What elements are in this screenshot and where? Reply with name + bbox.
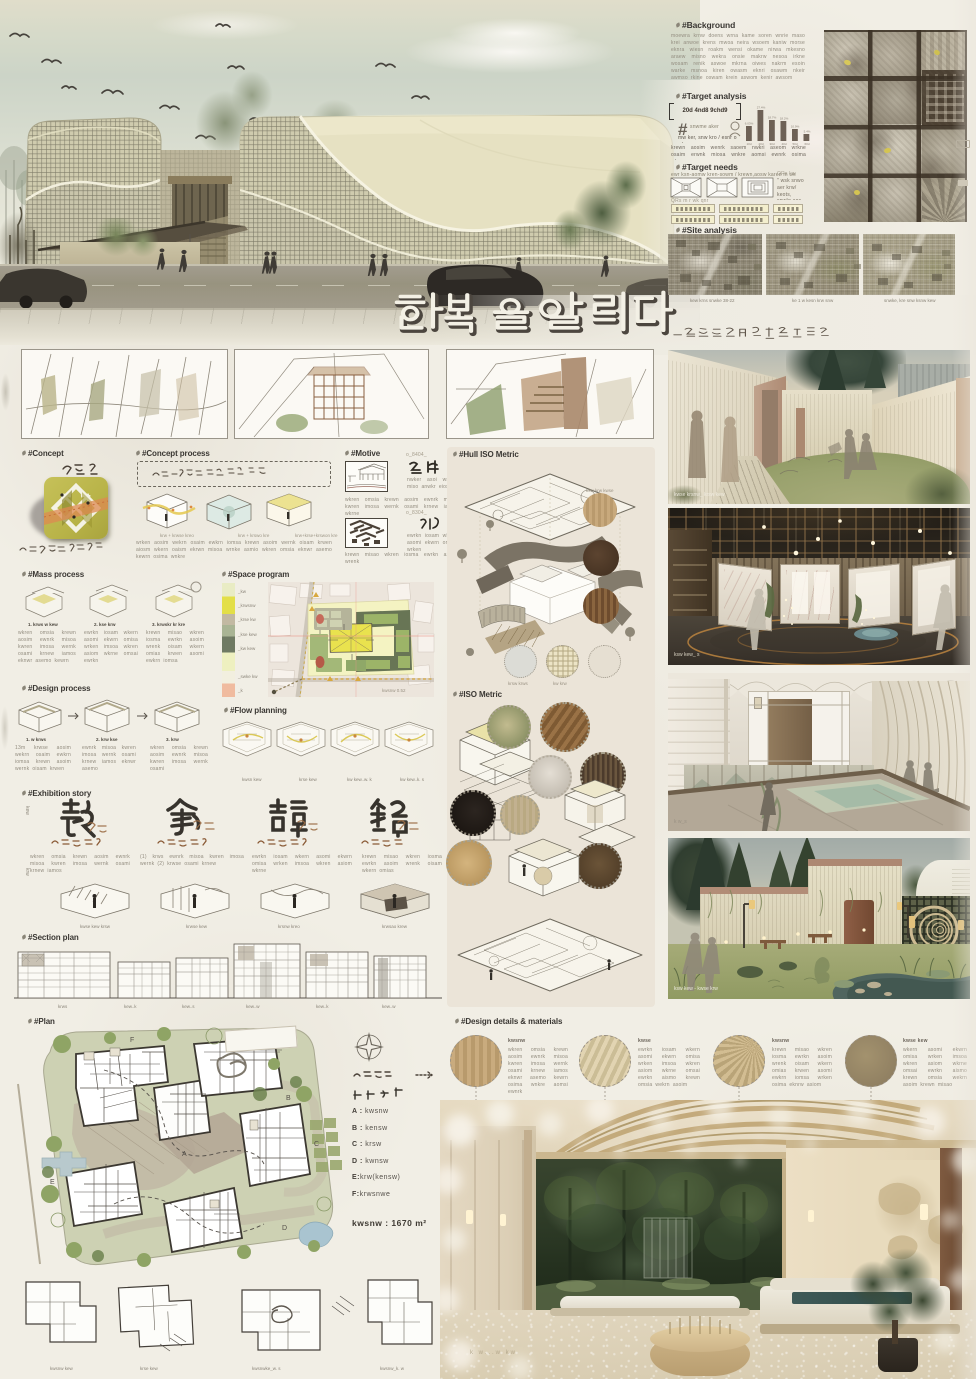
svg-text:10.9%: 10.9% bbox=[791, 125, 800, 129]
svg-text:5.4%: 5.4% bbox=[804, 130, 811, 134]
svg-text:A: A bbox=[182, 1151, 187, 1158]
svg-text:D: D bbox=[282, 1225, 287, 1232]
svg-text:B: B bbox=[286, 1095, 291, 1102]
svg-text:E: E bbox=[50, 1179, 55, 1186]
svg-text:6.03%: 6.03% bbox=[745, 122, 754, 126]
svg-text:27.4%: 27.4% bbox=[757, 106, 766, 110]
svg-text:F: F bbox=[130, 1037, 134, 1044]
svg-text:C: C bbox=[314, 1141, 319, 1148]
svg-text:18.2%: 18.2% bbox=[780, 117, 789, 121]
svg-text:18.7%: 18.7% bbox=[768, 116, 777, 120]
